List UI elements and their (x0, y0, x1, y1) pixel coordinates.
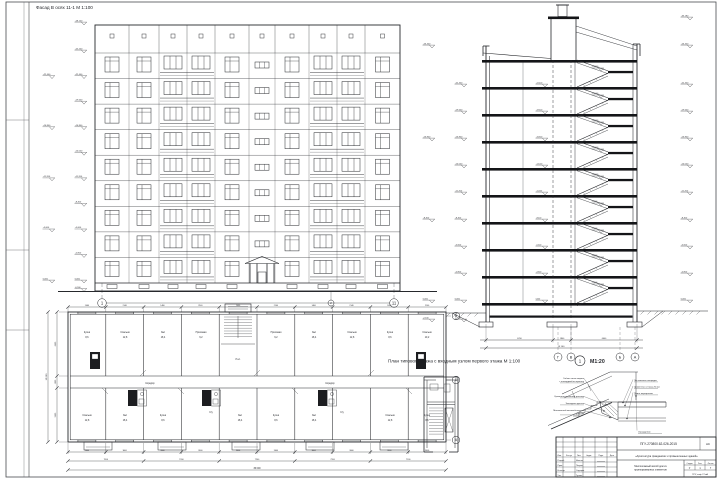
drawing-canvas: Фасад В осях 11-1 М 1:100 1112+28,100+25… (0, 0, 720, 480)
room-label: Кухня (84, 332, 91, 334)
leader-dot (605, 404, 606, 405)
detail-note: Гибкая связь марша (563, 378, 584, 380)
basement-slab (490, 316, 633, 318)
elevation-mark-value: -0,900 (75, 287, 82, 289)
room-label: Спальня (82, 415, 92, 417)
object-name-line2: крупноразмерных элементов (634, 469, 667, 472)
machine-room-slab (548, 17, 579, 20)
elevation-mark-value: 0,000 (536, 298, 541, 300)
elevation-mark-value: +8,400 (75, 202, 82, 204)
elevation-mark-value: +16,800 (536, 136, 543, 138)
detail-note: Монолитный железобетонный (553, 409, 584, 412)
elevation-mark-value: +14,000 (455, 163, 463, 165)
room-label: Зал (238, 415, 243, 417)
dimension-text: 3600 (123, 450, 127, 452)
titleblock-role: Пров. (558, 465, 564, 467)
elevation-mark-value: +19,600 (455, 109, 463, 111)
room-label: Зал (312, 415, 317, 417)
room-label: Коридор (145, 383, 155, 385)
dimension-text: 1460 (236, 305, 240, 307)
elevation-mark-value: +11,200 (75, 176, 83, 178)
elevation-mark-value: +22,400 (43, 74, 51, 76)
elevation-mark-value: 0,000 (75, 278, 81, 280)
titleblock-name: Гусева (576, 475, 583, 477)
leader-dot (622, 402, 623, 403)
floor-slab (482, 141, 637, 144)
leader-dot (626, 418, 627, 419)
room-label: Спальня (347, 332, 357, 334)
half-landing-slab (608, 152, 633, 154)
titleblock-role: Разраб. (558, 460, 566, 462)
elevation-mark-value: -2,100 (423, 317, 430, 319)
half-landing-slab (608, 287, 633, 289)
titleblock-column-header: Кол.уч (566, 455, 572, 457)
titleblock-role: Н.контр. (558, 470, 566, 472)
elevation-mark-value: +11,200 (536, 190, 542, 192)
room-label: 10,2 (425, 337, 430, 339)
wc-unit (128, 390, 137, 406)
titleblock-column-header: №док. (586, 454, 592, 457)
titleblock-name: Иванов (576, 460, 583, 462)
elevation-mark-value: 0,000 (43, 278, 49, 280)
elevation-mark-value: +14,000 (75, 151, 83, 153)
elevation-mark-value: +5,600 (536, 244, 542, 246)
leader-dot (603, 410, 604, 411)
leader-dot (609, 417, 610, 418)
titleblock-column-header: Подп. (598, 455, 603, 457)
dimension-text: 3600 (236, 450, 240, 452)
leader-dot (635, 395, 636, 396)
room-label: Зал (161, 332, 166, 334)
elevation-mark-value: +2,800 (536, 271, 542, 273)
titleblock-stage-header: Листов (708, 463, 714, 465)
facade-title: Фасад В осях 11-1 М 1:100 (36, 5, 93, 10)
room-label: Коридор (325, 383, 335, 385)
room-label: Зал (123, 415, 128, 417)
dimension-text: 2140 (123, 305, 127, 307)
elevation-mark-value: +25,200 (75, 48, 83, 50)
elevation-mark-value: +23,800 (592, 66, 599, 68)
half-landing-slab (608, 260, 633, 262)
object-name-line1: Многоэтажный жилой дом из (634, 465, 666, 468)
elevation-mark-value: +26,400 (681, 43, 689, 45)
elevation-mark-value: +18,200 (592, 120, 599, 122)
organization-name: ПГУ, каф. ГСиА (692, 473, 708, 476)
elevation-mark-value: +12,600 (592, 174, 599, 176)
room-label: 12,8 (388, 420, 393, 422)
room-label: Кухня (387, 332, 394, 334)
floor-slab (482, 303, 637, 306)
floor-slab (482, 168, 637, 171)
room-label: Кухня (273, 415, 280, 417)
elevation-mark-value: +5,600 (455, 244, 462, 246)
dimension-text: 2140 (274, 305, 278, 307)
titleblock-column-header: Изм. (557, 455, 562, 457)
elevation-mark-value: +1,400 (592, 282, 598, 284)
elevation-mark-value: +11,200 (681, 190, 689, 192)
floor-slab (482, 249, 637, 252)
elevation-mark-value: 0,000 (681, 298, 687, 300)
elevation-mark-value: +5,600 (43, 227, 50, 229)
elevation-mark-value: +22,400 (536, 82, 543, 84)
elevation-mark-value: +8,400 (681, 217, 688, 219)
half-landing-slab (608, 71, 633, 73)
plan-title: План типового этажа с входным узлом перв… (388, 359, 521, 364)
room-label: Спальня (422, 332, 432, 334)
room-label: 18,4 (312, 337, 317, 339)
axis-label: А (634, 355, 637, 359)
dimension-text: 3600 (312, 450, 316, 452)
elevation-mark-value: +16,800 (681, 136, 689, 138)
dimension-text: 3600 (387, 450, 391, 452)
elevation-mark-value: +26,400 (423, 43, 431, 45)
elevation-mark-value: 0,000 (423, 298, 429, 300)
elevation-mark-value: +16,800 (423, 136, 431, 138)
wc-unit (318, 390, 327, 406)
dimension-text: 3600 (160, 450, 164, 452)
elevation-mark-value: +4,200 (592, 255, 598, 257)
axis-label: В (570, 355, 573, 359)
elevation-mark-value: 0,000 (455, 298, 461, 300)
room-label: 12,8 (123, 337, 128, 339)
dimension-text: 2140 (425, 305, 429, 307)
elevation-mark-value: +19,600 (75, 99, 83, 101)
elevation-mark-value: +5,600 (75, 227, 82, 229)
room-label: Прихожая (271, 332, 282, 334)
half-landing-slab (608, 179, 633, 181)
dimension-text: 1460 (312, 305, 316, 307)
floor-slab (482, 60, 637, 63)
elevation-mark-value: +33,180 (681, 15, 689, 17)
elevation-mark-value: +16,800 (455, 136, 463, 138)
floor-slab (482, 195, 637, 198)
elevation-mark-value: +8,400 (455, 217, 462, 219)
room-label: Кухня (160, 415, 167, 417)
room-label: 12,8 (350, 337, 355, 339)
elevation-mark-value: +22,400 (455, 82, 463, 84)
room-label: Прихожая (196, 332, 207, 334)
floor-slab (482, 276, 637, 279)
blueprint-sheet: Фасад В осях 11-1 М 1:100 1112+28,100+25… (0, 0, 720, 480)
room-label: Л.кл. (235, 359, 241, 361)
room-label: Спальня (120, 332, 130, 334)
elevation-mark-value: +15,400 (592, 147, 599, 149)
half-landing-slab (608, 233, 633, 235)
elevation-mark-value: +11,200 (455, 190, 463, 192)
elevation-mark-value: +22,400 (75, 74, 83, 76)
elevation-mark-value: +2,800 (681, 271, 688, 273)
document-code: ПГУ-270800.62-026-2015 (640, 442, 677, 446)
half-landing-slab (608, 125, 633, 127)
axis-label: Г (557, 355, 559, 359)
sheet-frame (6, 2, 716, 477)
elevation-mark-value: +14,000 (536, 163, 543, 165)
elevation-mark-value: +5,600 (681, 244, 688, 246)
dimension-text: 3600 (349, 450, 353, 452)
titleblock-role: Утв. (558, 475, 562, 477)
detail-note: Цементно-песчаный раствор (555, 395, 585, 398)
dimension-text: 3600 (274, 450, 278, 452)
floor-slab (482, 222, 637, 225)
room-label: 18,4 (312, 420, 317, 422)
floor-slab (482, 87, 637, 90)
dimension-text: 1460 (387, 305, 391, 307)
elevation-mark-value: +2,800 (455, 271, 462, 273)
titleblock-stage-header: Лист (698, 463, 702, 465)
floor-slab (482, 114, 637, 117)
room-label: Спальня (385, 415, 395, 417)
dimension-text: 1460 (160, 305, 164, 307)
room-label: 18,4 (161, 337, 166, 339)
elevation-mark-value: +28,100 (75, 20, 83, 22)
room-label: 18,4 (238, 420, 243, 422)
elevation-mark-value: +14,000 (681, 163, 689, 165)
titleblock-name: Петров (576, 465, 583, 467)
half-landing-slab (608, 206, 633, 208)
dimension-text: 13 000 (46, 373, 48, 380)
dimension-text: 2140 (198, 305, 202, 307)
elevation-mark-value: +19,600 (536, 109, 543, 111)
elevation-mark-value: +2,800 (75, 253, 82, 255)
elevation-mark-value: +19,600 (681, 109, 689, 111)
dimension-text: 2140 (349, 305, 353, 307)
room-label: 12,8 (85, 420, 90, 422)
room-label: 18,4 (123, 420, 128, 422)
elevation-mark-value: +16,800 (43, 125, 51, 127)
detail-note: с площадкой по проекту (559, 380, 585, 383)
elevation-mark-value: +22,400 (681, 82, 689, 84)
leader-dot (624, 405, 625, 406)
dimension-text: 3600 (198, 450, 202, 452)
elevation-mark-value: +16,800 (75, 125, 83, 127)
elevation-mark-value: +8,400 (423, 217, 430, 219)
elevation-mark-value: +7,000 (592, 228, 598, 230)
detail-scale-label: М1:20 (590, 359, 605, 365)
dimension-text: 36 000 (253, 468, 261, 470)
room-label: Зал (312, 332, 317, 334)
wc-unit (202, 390, 211, 406)
elevation-mark-value: +21,000 (592, 93, 599, 95)
dimension-text: 3600 (85, 450, 89, 452)
axis-label: 11 (392, 301, 397, 306)
titleblock-column-header: Лист (577, 455, 581, 457)
elevation-mark-value: +11,200 (43, 176, 51, 178)
elevation-mark-value: +8,400 (536, 217, 542, 219)
dimension-text: 15 100 (558, 346, 565, 348)
dimension-text: 1460 (85, 305, 89, 307)
titleblock-stage-header: Стадия (686, 463, 692, 465)
titleblock-name: Сидоров (576, 470, 584, 472)
half-landing-slab (608, 98, 633, 100)
project-theme: «Архитектура гражданских и промышленных … (635, 455, 698, 458)
elevation-mark-value: +9,800 (592, 201, 598, 203)
